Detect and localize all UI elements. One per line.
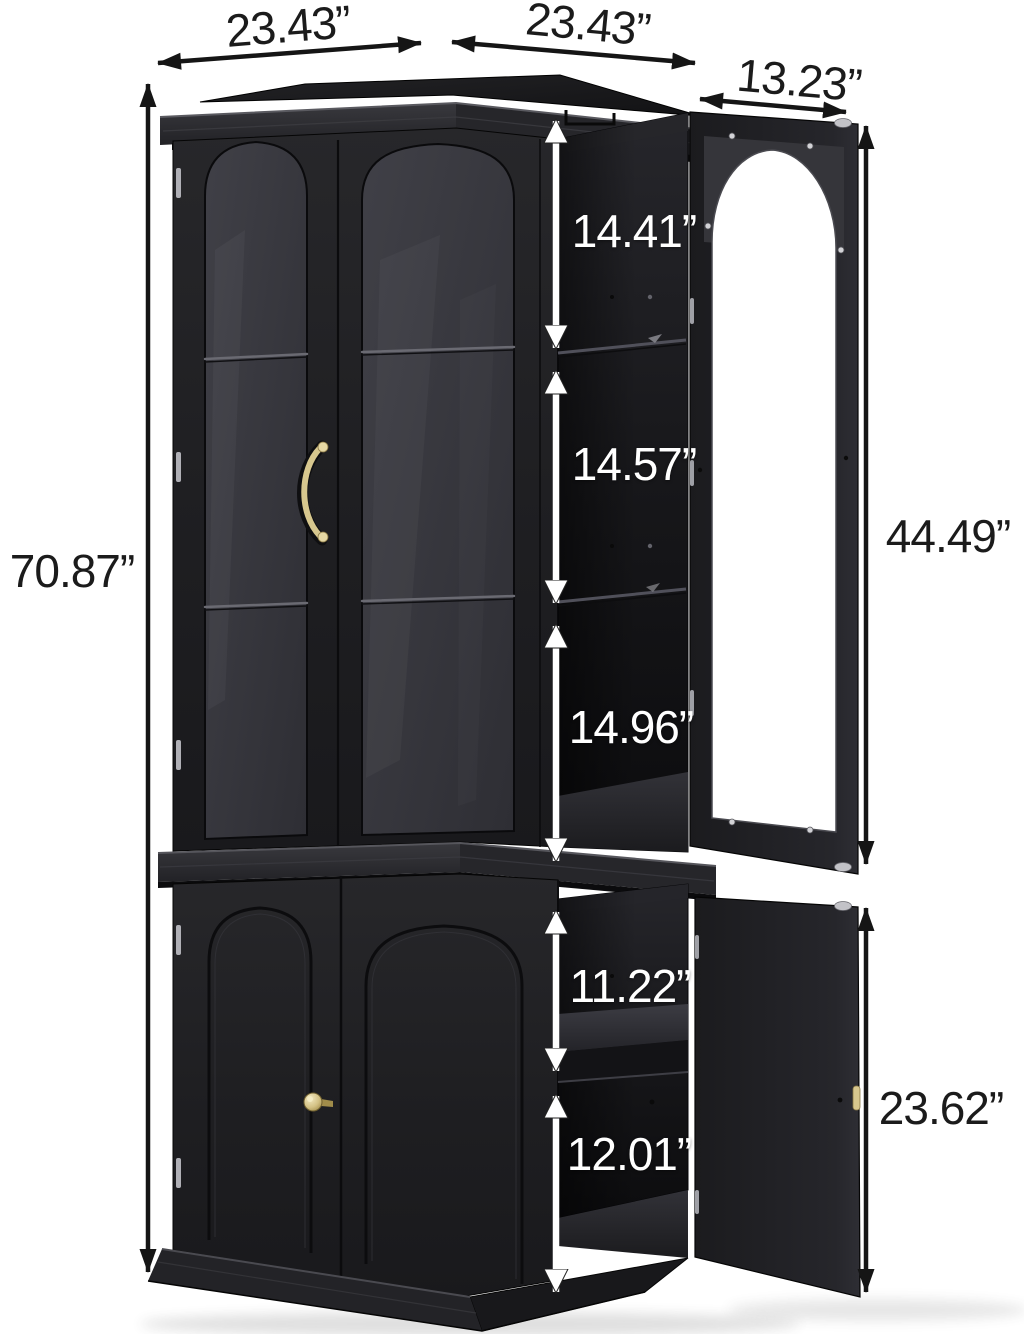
corner-cabinet-dimension-diagram: 23.43” 23.43” 13.23” 70.87” 44.49” 23.62… bbox=[0, 0, 1024, 1334]
lower-open-door bbox=[695, 897, 860, 1297]
dim-label-top-right-width: 23.43” bbox=[524, 0, 652, 53]
dim-label-lower-compartment-2: 12.01” bbox=[567, 1131, 691, 1177]
knob-edge-gold bbox=[853, 1086, 860, 1110]
upper-cabinet-front bbox=[173, 128, 558, 851]
cam-lock bbox=[835, 902, 852, 911]
upper-open-door bbox=[690, 112, 858, 874]
dim-label-total-height: 70.87” bbox=[10, 548, 134, 594]
dim-label-upper-compartment-3: 14.96” bbox=[569, 704, 693, 750]
dim-label-lower-compartment-1: 11.22” bbox=[569, 963, 690, 1009]
dim-label-top-left-width: 23.43” bbox=[224, 0, 352, 54]
cam-lock bbox=[835, 119, 852, 128]
dim-label-upper-compartment-2: 14.57” bbox=[572, 441, 696, 487]
dim-label-open-door-width: 13.23” bbox=[735, 52, 863, 109]
dim-label-upper-compartment-1: 14.41” bbox=[572, 208, 696, 254]
door-window-white bbox=[712, 150, 836, 832]
dim-label-upper-door-height: 44.49” bbox=[886, 513, 1010, 559]
cabinet-illustration bbox=[0, 0, 1024, 1334]
lower-cabinet-front bbox=[173, 874, 558, 1297]
dim-label-lower-door-height: 23.62” bbox=[879, 1085, 1003, 1131]
